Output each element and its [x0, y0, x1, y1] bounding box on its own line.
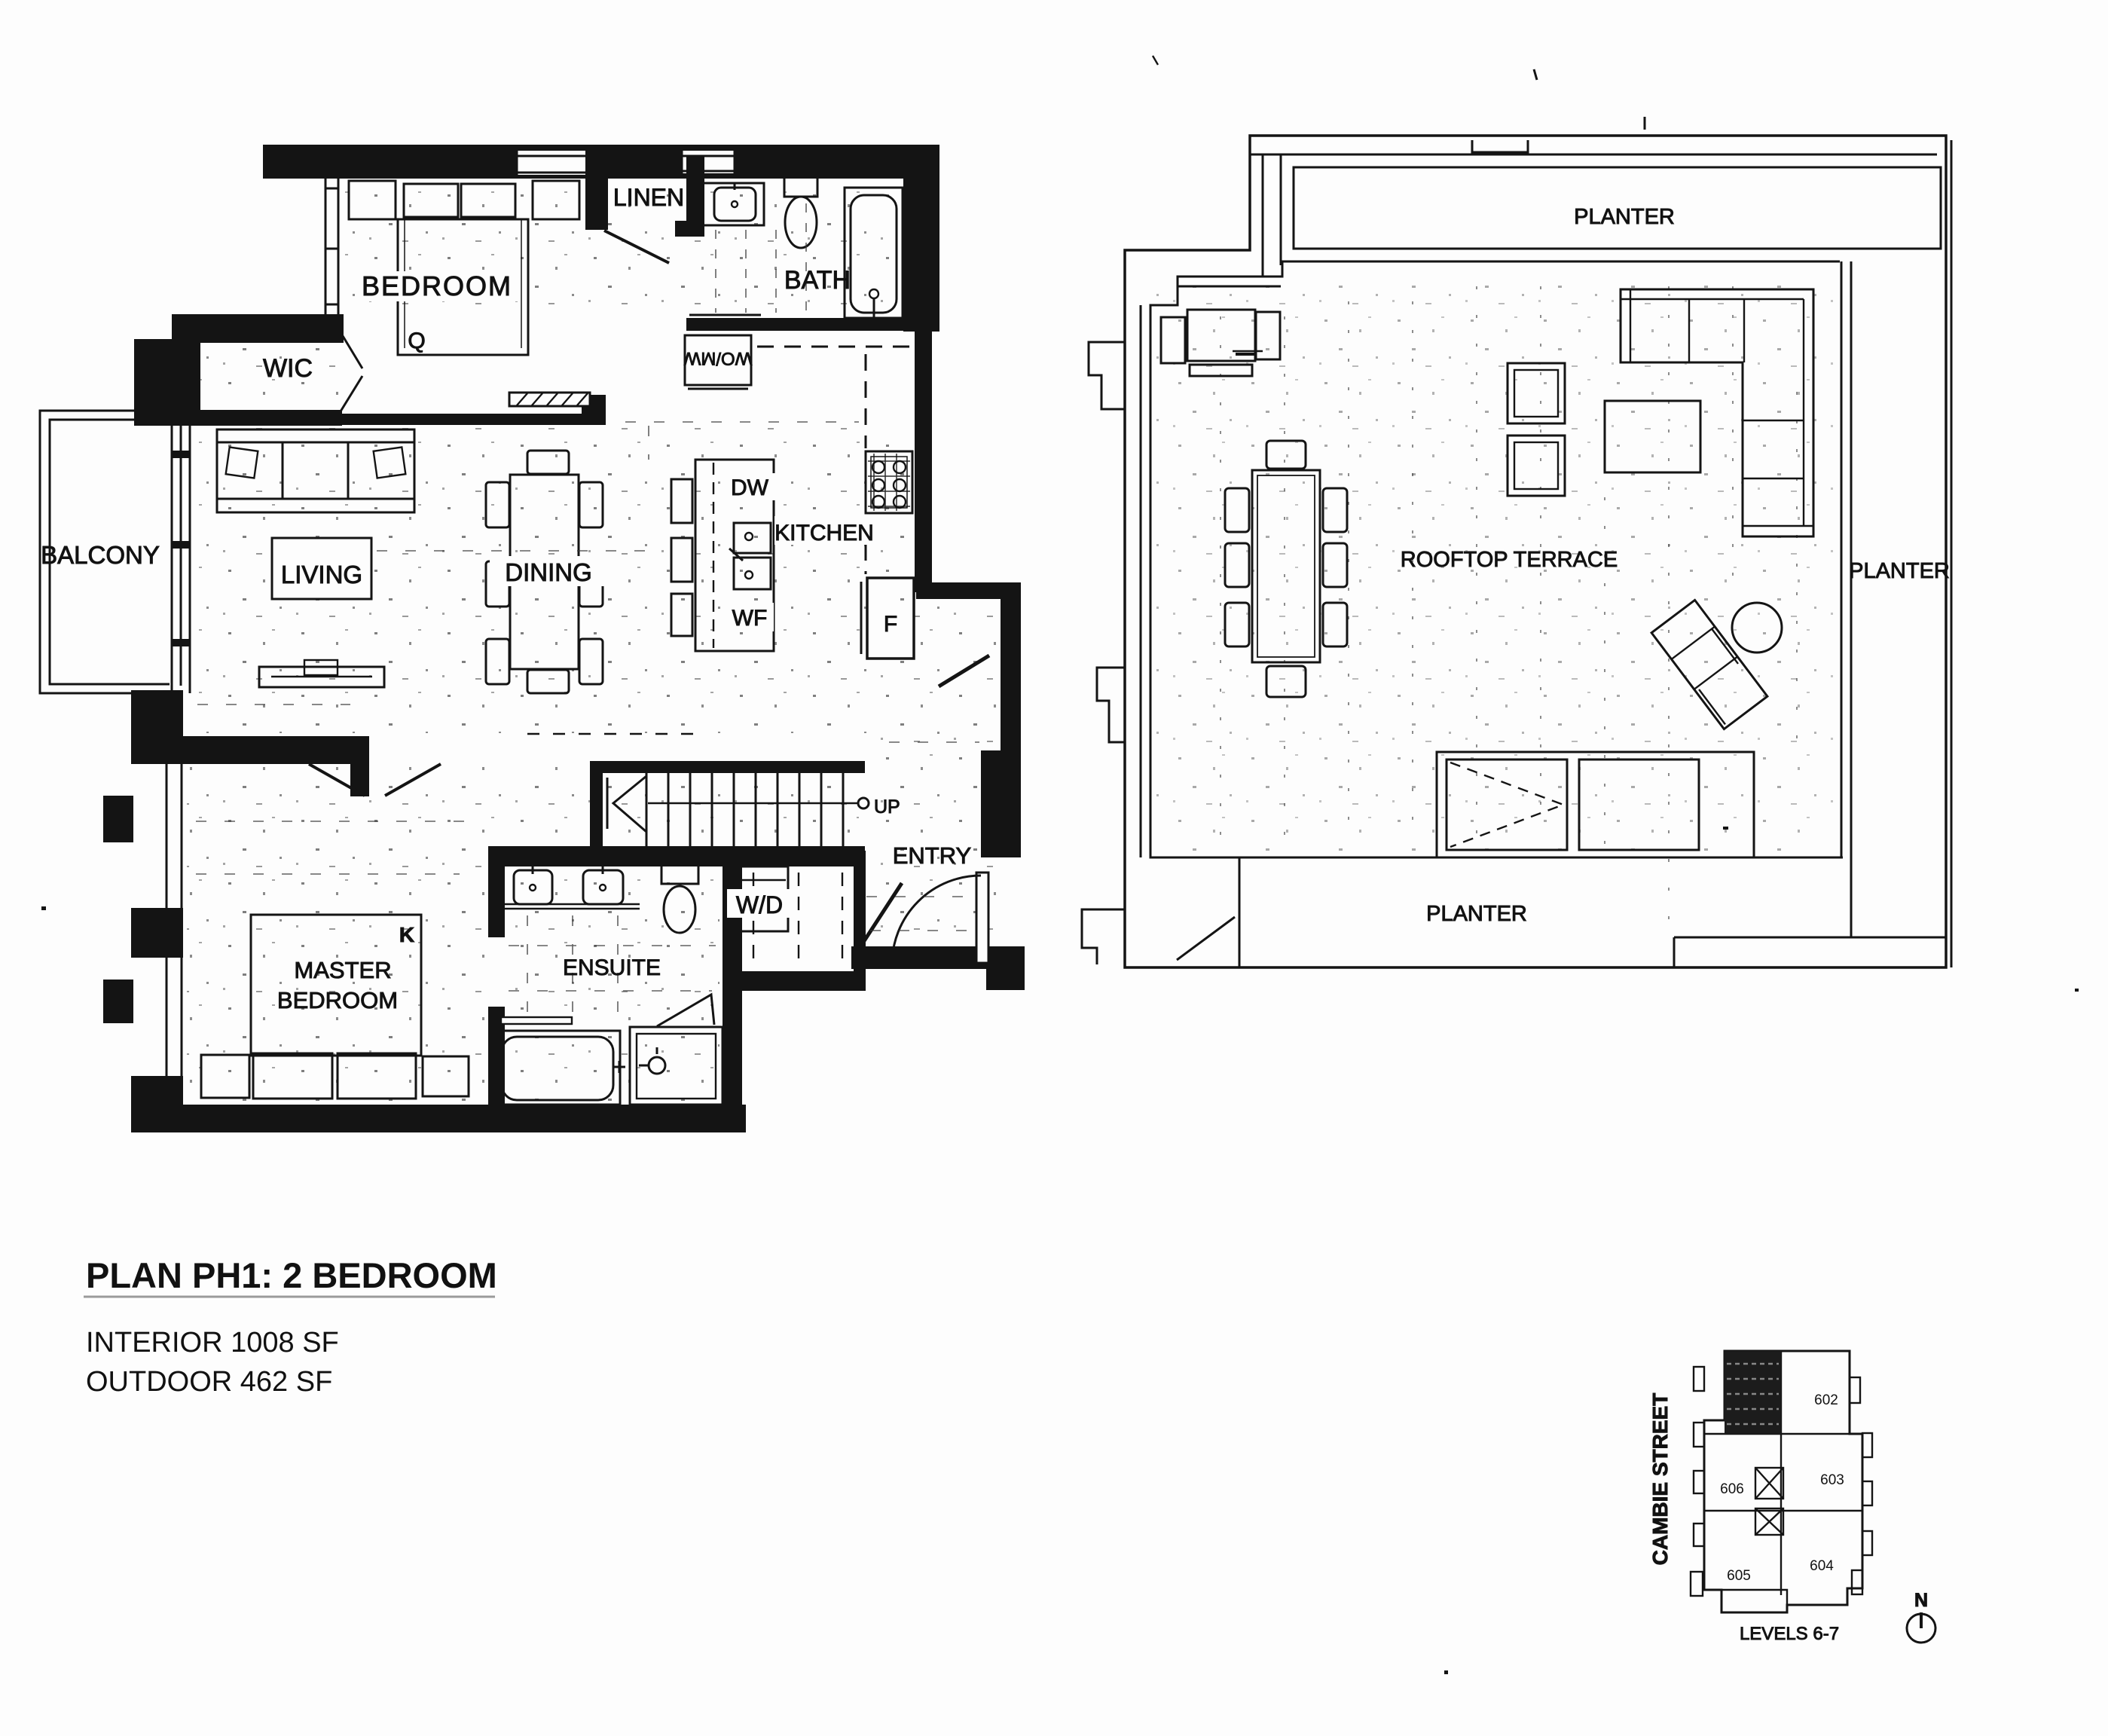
svg-text:OUTDOOR 462 SF: OUTDOOR 462 SF [86, 1366, 332, 1398]
svg-text:BEDROOM: BEDROOM [362, 270, 512, 301]
svg-text:DW: DW [731, 475, 769, 500]
svg-text:WO/MW: WO/MW [683, 348, 752, 368]
svg-text:LEVELS 6-7: LEVELS 6-7 [1740, 1624, 1839, 1644]
svg-text:LIVING: LIVING [281, 561, 362, 588]
svg-text:604: 604 [1810, 1558, 1834, 1574]
svg-text:KITCHEN: KITCHEN [774, 521, 874, 546]
svg-text:PLANTER: PLANTER [1426, 902, 1527, 926]
svg-text:Q: Q [408, 329, 425, 353]
svg-text:DINING: DINING [505, 558, 592, 586]
svg-text:PLANTER: PLANTER [1849, 559, 1950, 583]
svg-text:N: N [1914, 1590, 1928, 1611]
svg-text:BEDROOM: BEDROOM [277, 987, 398, 1013]
svg-text:PLAN PH1: 2 BEDROOM: PLAN PH1: 2 BEDROOM [86, 1255, 497, 1295]
svg-text:K: K [399, 923, 414, 946]
svg-text:WIC: WIC [263, 354, 313, 383]
svg-text:WF: WF [732, 606, 768, 631]
svg-text:CAMBIE STREET: CAMBIE STREET [1648, 1393, 1672, 1566]
svg-text:MASTER: MASTER [294, 957, 391, 983]
svg-text:INTERIOR 1008 SF: INTERIOR 1008 SF [86, 1327, 339, 1359]
svg-text:606: 606 [1720, 1481, 1744, 1497]
svg-text:UP: UP [874, 796, 900, 818]
svg-text:BATH: BATH [784, 266, 851, 295]
svg-text:603: 603 [1820, 1472, 1844, 1488]
svg-text:ENSUITE: ENSUITE [563, 955, 661, 980]
svg-text:ENTRY: ENTRY [893, 842, 972, 869]
svg-text:F: F [884, 612, 897, 637]
svg-text:W/D: W/D [736, 891, 783, 918]
svg-text:BALCONY: BALCONY [41, 541, 160, 569]
svg-text:PLANTER: PLANTER [1574, 205, 1675, 229]
svg-text:ROOFTOP TERRACE: ROOFTOP TERRACE [1401, 548, 1618, 572]
svg-text:605: 605 [1727, 1568, 1751, 1584]
svg-text:602: 602 [1814, 1392, 1838, 1408]
svg-text:LINEN: LINEN [613, 184, 684, 211]
